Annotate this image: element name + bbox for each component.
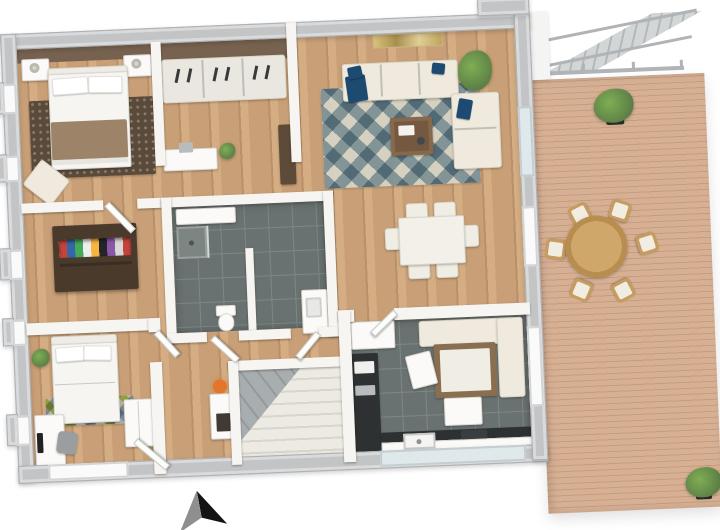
railing-post-2 (582, 64, 585, 74)
wall-bedroom-hall-b (137, 198, 161, 209)
counter-appliance-2 (355, 385, 375, 396)
floor-plan-scene (0, 0, 720, 530)
bathroom-wall-bottom-a (167, 332, 207, 344)
counter-appliance-1 (354, 361, 374, 374)
bathroom-wall-bottom-c (319, 326, 339, 337)
bed-pillow-left (52, 76, 89, 96)
washbasin (305, 297, 322, 318)
window-bottom-bedroom2 (48, 461, 129, 480)
coffee-table-tray (398, 125, 414, 136)
floor-plan (0, 0, 720, 530)
window-left-4 (12, 320, 27, 347)
bed2-pillow-right (83, 345, 111, 360)
window-left-2 (5, 156, 20, 183)
cooktop (461, 429, 487, 439)
chair-cushion-5 (572, 281, 590, 299)
corner-bench-right (496, 317, 525, 398)
window-left-5 (16, 415, 31, 446)
desk-chair (56, 431, 79, 455)
wardrobe-clothes (59, 237, 132, 258)
railing-post-4 (680, 60, 683, 70)
sofa-pillow-right (431, 62, 445, 74)
toilet-bowl (218, 313, 235, 332)
chair-cushion-6 (614, 281, 633, 300)
wall-art (372, 32, 443, 49)
chair-cushion-2 (611, 202, 629, 220)
window-right-dining (522, 206, 539, 267)
roof-stub-top-right (477, 0, 530, 16)
window-left-3 (9, 250, 24, 281)
console-decor (216, 413, 231, 432)
bed2-pillow-left (55, 346, 85, 363)
storage-box (179, 142, 193, 153)
railing-post-3 (632, 62, 635, 72)
north-arrow-right-half (173, 486, 227, 530)
terrace-glass-door (518, 106, 535, 177)
dining-table (398, 215, 466, 266)
bed-pillow-right (88, 76, 122, 93)
outdoor-chair-3 (544, 238, 566, 260)
chair-cushion-3 (548, 241, 564, 257)
bathroom-vanity (176, 207, 237, 225)
north-arrow (173, 486, 227, 530)
bed-blanket (51, 119, 129, 160)
desk-monitor (37, 433, 44, 453)
kitchen-chair-2 (444, 397, 483, 427)
chair-cushion-4 (639, 235, 657, 253)
window-left-1 (2, 84, 17, 115)
kitchen-table-top (440, 348, 492, 392)
